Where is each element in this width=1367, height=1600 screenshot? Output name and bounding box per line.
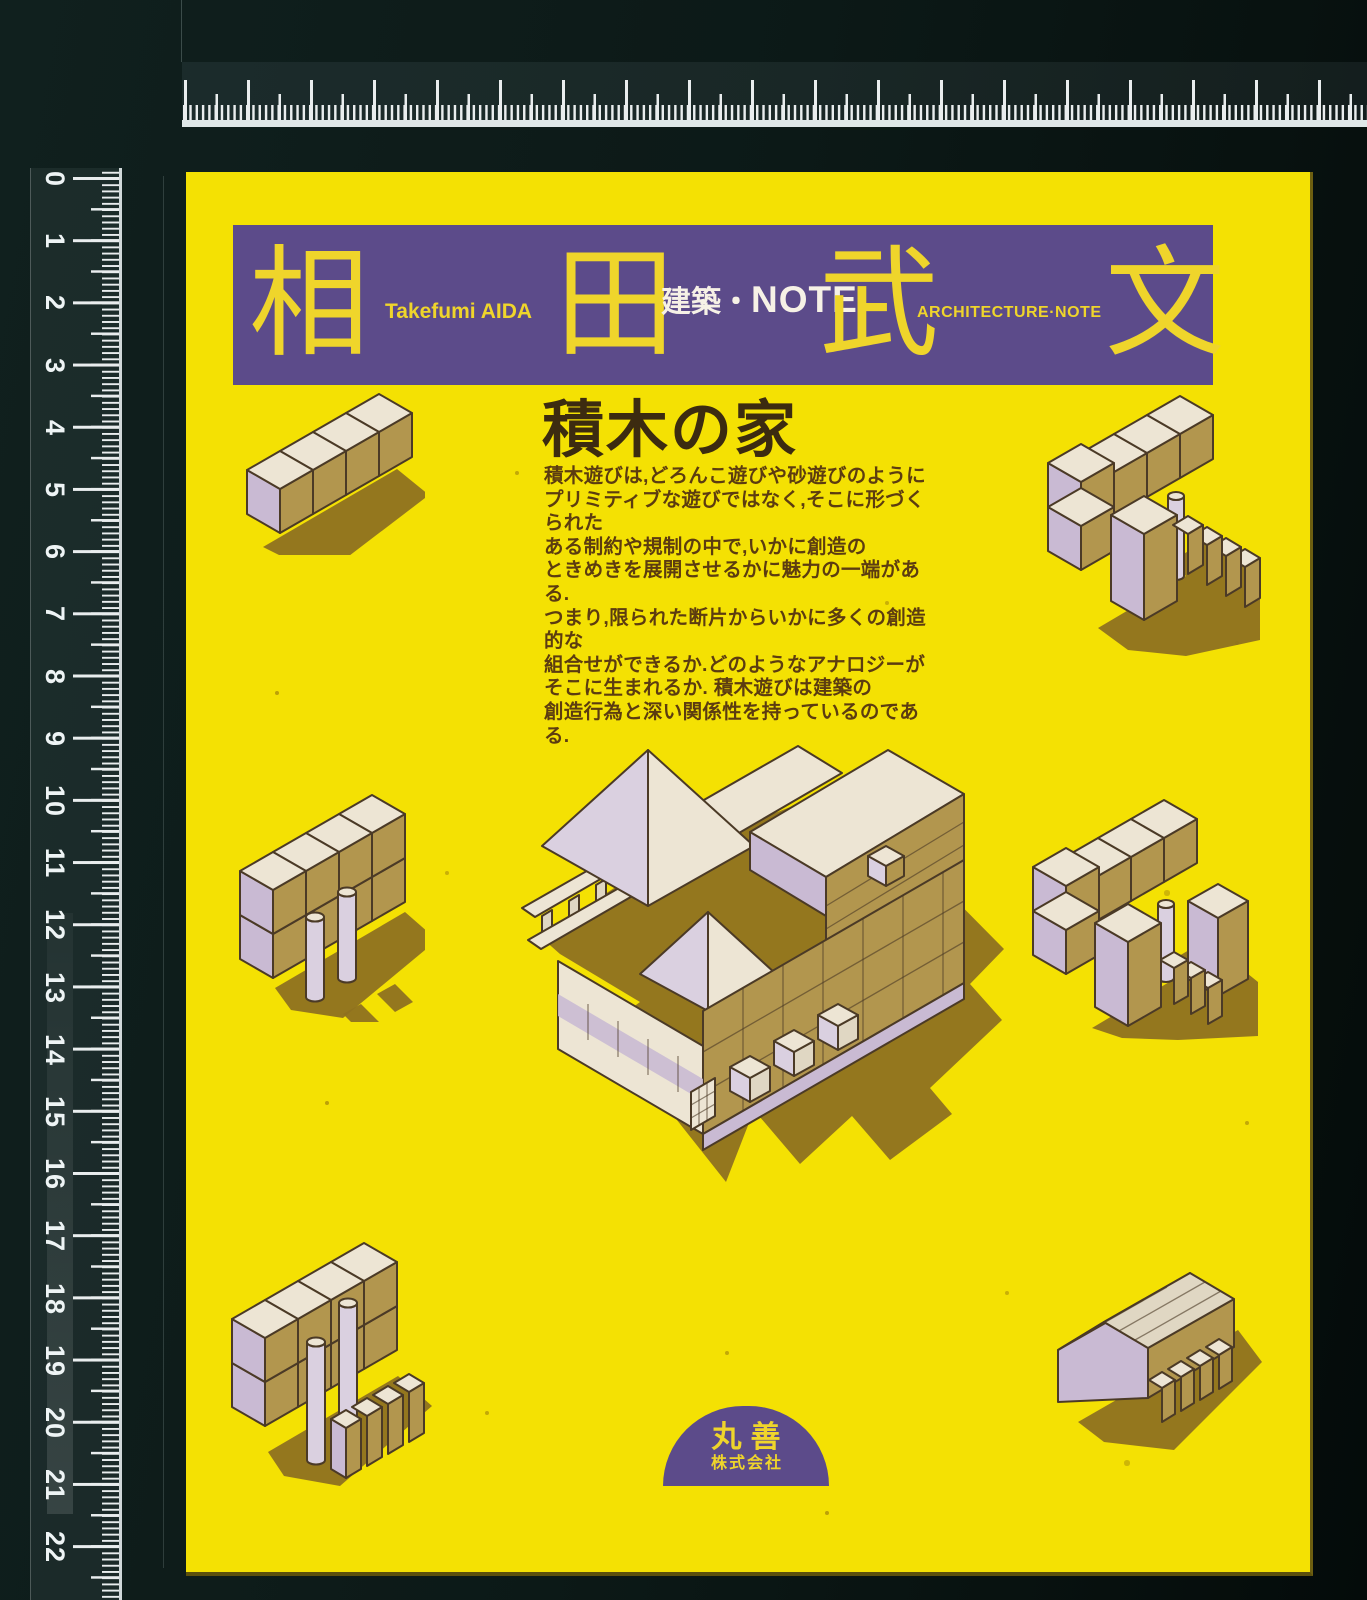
ruler-number: 4 [40,410,70,446]
series-jp-label: 建築・ [661,288,751,318]
ruler-number: 9 [40,721,70,757]
title-banner: 相 Takefumi AIDA 田 建築・ NOTE 武 ARCHITECTUR… [233,225,1213,385]
ruler-number: 22 [40,1529,70,1565]
ruler-number: 3 [40,348,70,384]
ruler-number: 12 [40,907,70,943]
author-kanji-1: 相 [249,245,369,365]
ruler-number: 1 [40,223,70,259]
author-kanji-4: 文 [1105,245,1225,365]
toy-block-house-illustration [498,654,1014,1182]
author-romaji: Takefumi AIDA [385,301,532,322]
ruler-number: 14 [40,1032,70,1068]
ruler-number: 11 [40,845,70,881]
ruler-number: 21 [40,1467,70,1503]
author-kanji-2: 田 [555,245,675,365]
ruler-number: 6 [40,534,70,570]
book-cover: 相 Takefumi AIDA 田 建築・ NOTE 武 ARCHITECTUR… [186,172,1313,1576]
ruler-number: 16 [40,1156,70,1192]
paper-speckles [186,172,188,174]
block-courtyard-with-pegs-illustration [1026,788,1260,1040]
block-wall-with-pegs-illustration [225,770,425,1022]
film-edge-line [181,0,182,62]
ruler-number: 8 [40,659,70,695]
ruler-number: 5 [40,472,70,508]
top-ruler [182,62,1367,127]
block-composition-top-right-illustration [1036,378,1264,656]
publisher-name: 丸善 [663,1423,829,1453]
publisher-seal: 丸善 株式会社 [663,1406,829,1486]
block-wall-with-tall-pegs-illustration [220,1228,440,1490]
book-spine-edge [163,176,164,1568]
ruler-number: 0 [40,161,70,197]
ruler-number: 2 [40,285,70,321]
photograph-of-book-cover-with-rulers: 012345678910111213141516171819202122 相 T… [0,0,1367,1600]
ruler-number: 10 [40,783,70,819]
left-ruler: 012345678910111213141516171819202122 [30,168,122,1600]
ruler-number: 15 [40,1094,70,1130]
ruler-number: 13 [40,970,70,1006]
cover-title: 積木の家 [542,400,798,462]
block-gable-house-illustration [1032,1230,1264,1452]
ruler-number: 19 [40,1343,70,1379]
publisher-type: 株式会社 [663,1456,829,1472]
ruler-number: 20 [40,1405,70,1441]
ruler-number: 7 [40,596,70,632]
block-row-illustration [225,383,425,555]
ruler-number: 18 [40,1281,70,1317]
ruler-number: 17 [40,1218,70,1254]
series-title-en: ARCHITECTURE·NOTE [917,305,1102,321]
